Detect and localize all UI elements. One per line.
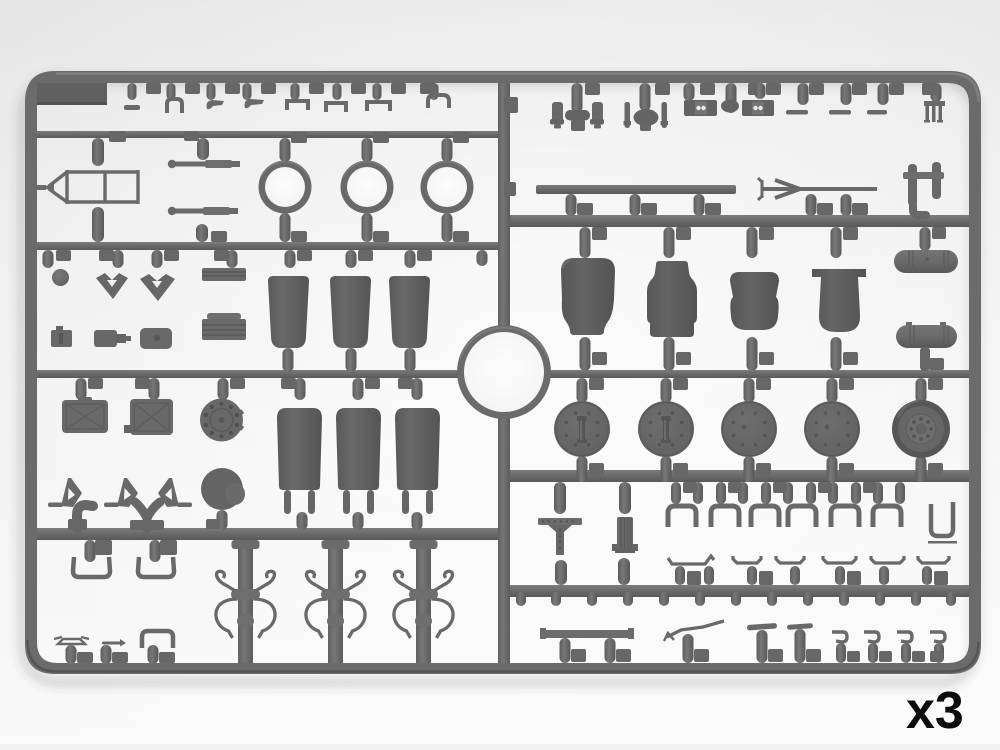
svg-text:x3: x3	[906, 682, 964, 740]
